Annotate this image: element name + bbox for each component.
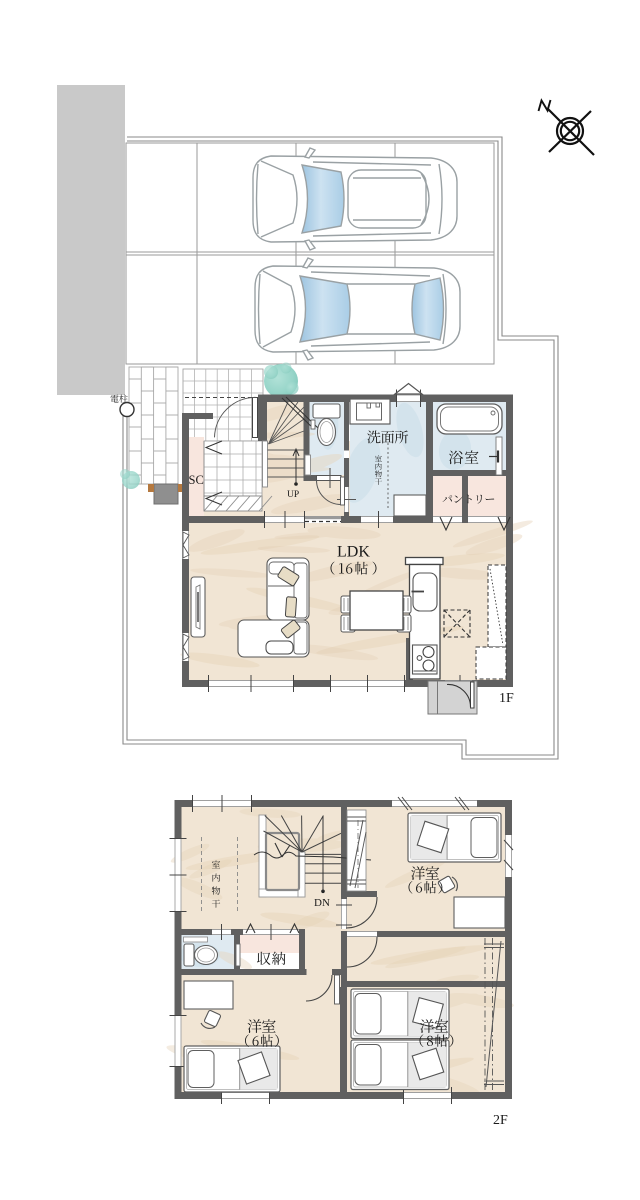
svg-text:2F: 2F bbox=[493, 1113, 508, 1128]
svg-text:SC: SC bbox=[189, 473, 204, 487]
svg-text:DN: DN bbox=[314, 897, 330, 909]
svg-text:LDK: LDK bbox=[337, 544, 370, 561]
svg-text:UP: UP bbox=[287, 490, 299, 500]
svg-text:1F: 1F bbox=[499, 691, 514, 706]
